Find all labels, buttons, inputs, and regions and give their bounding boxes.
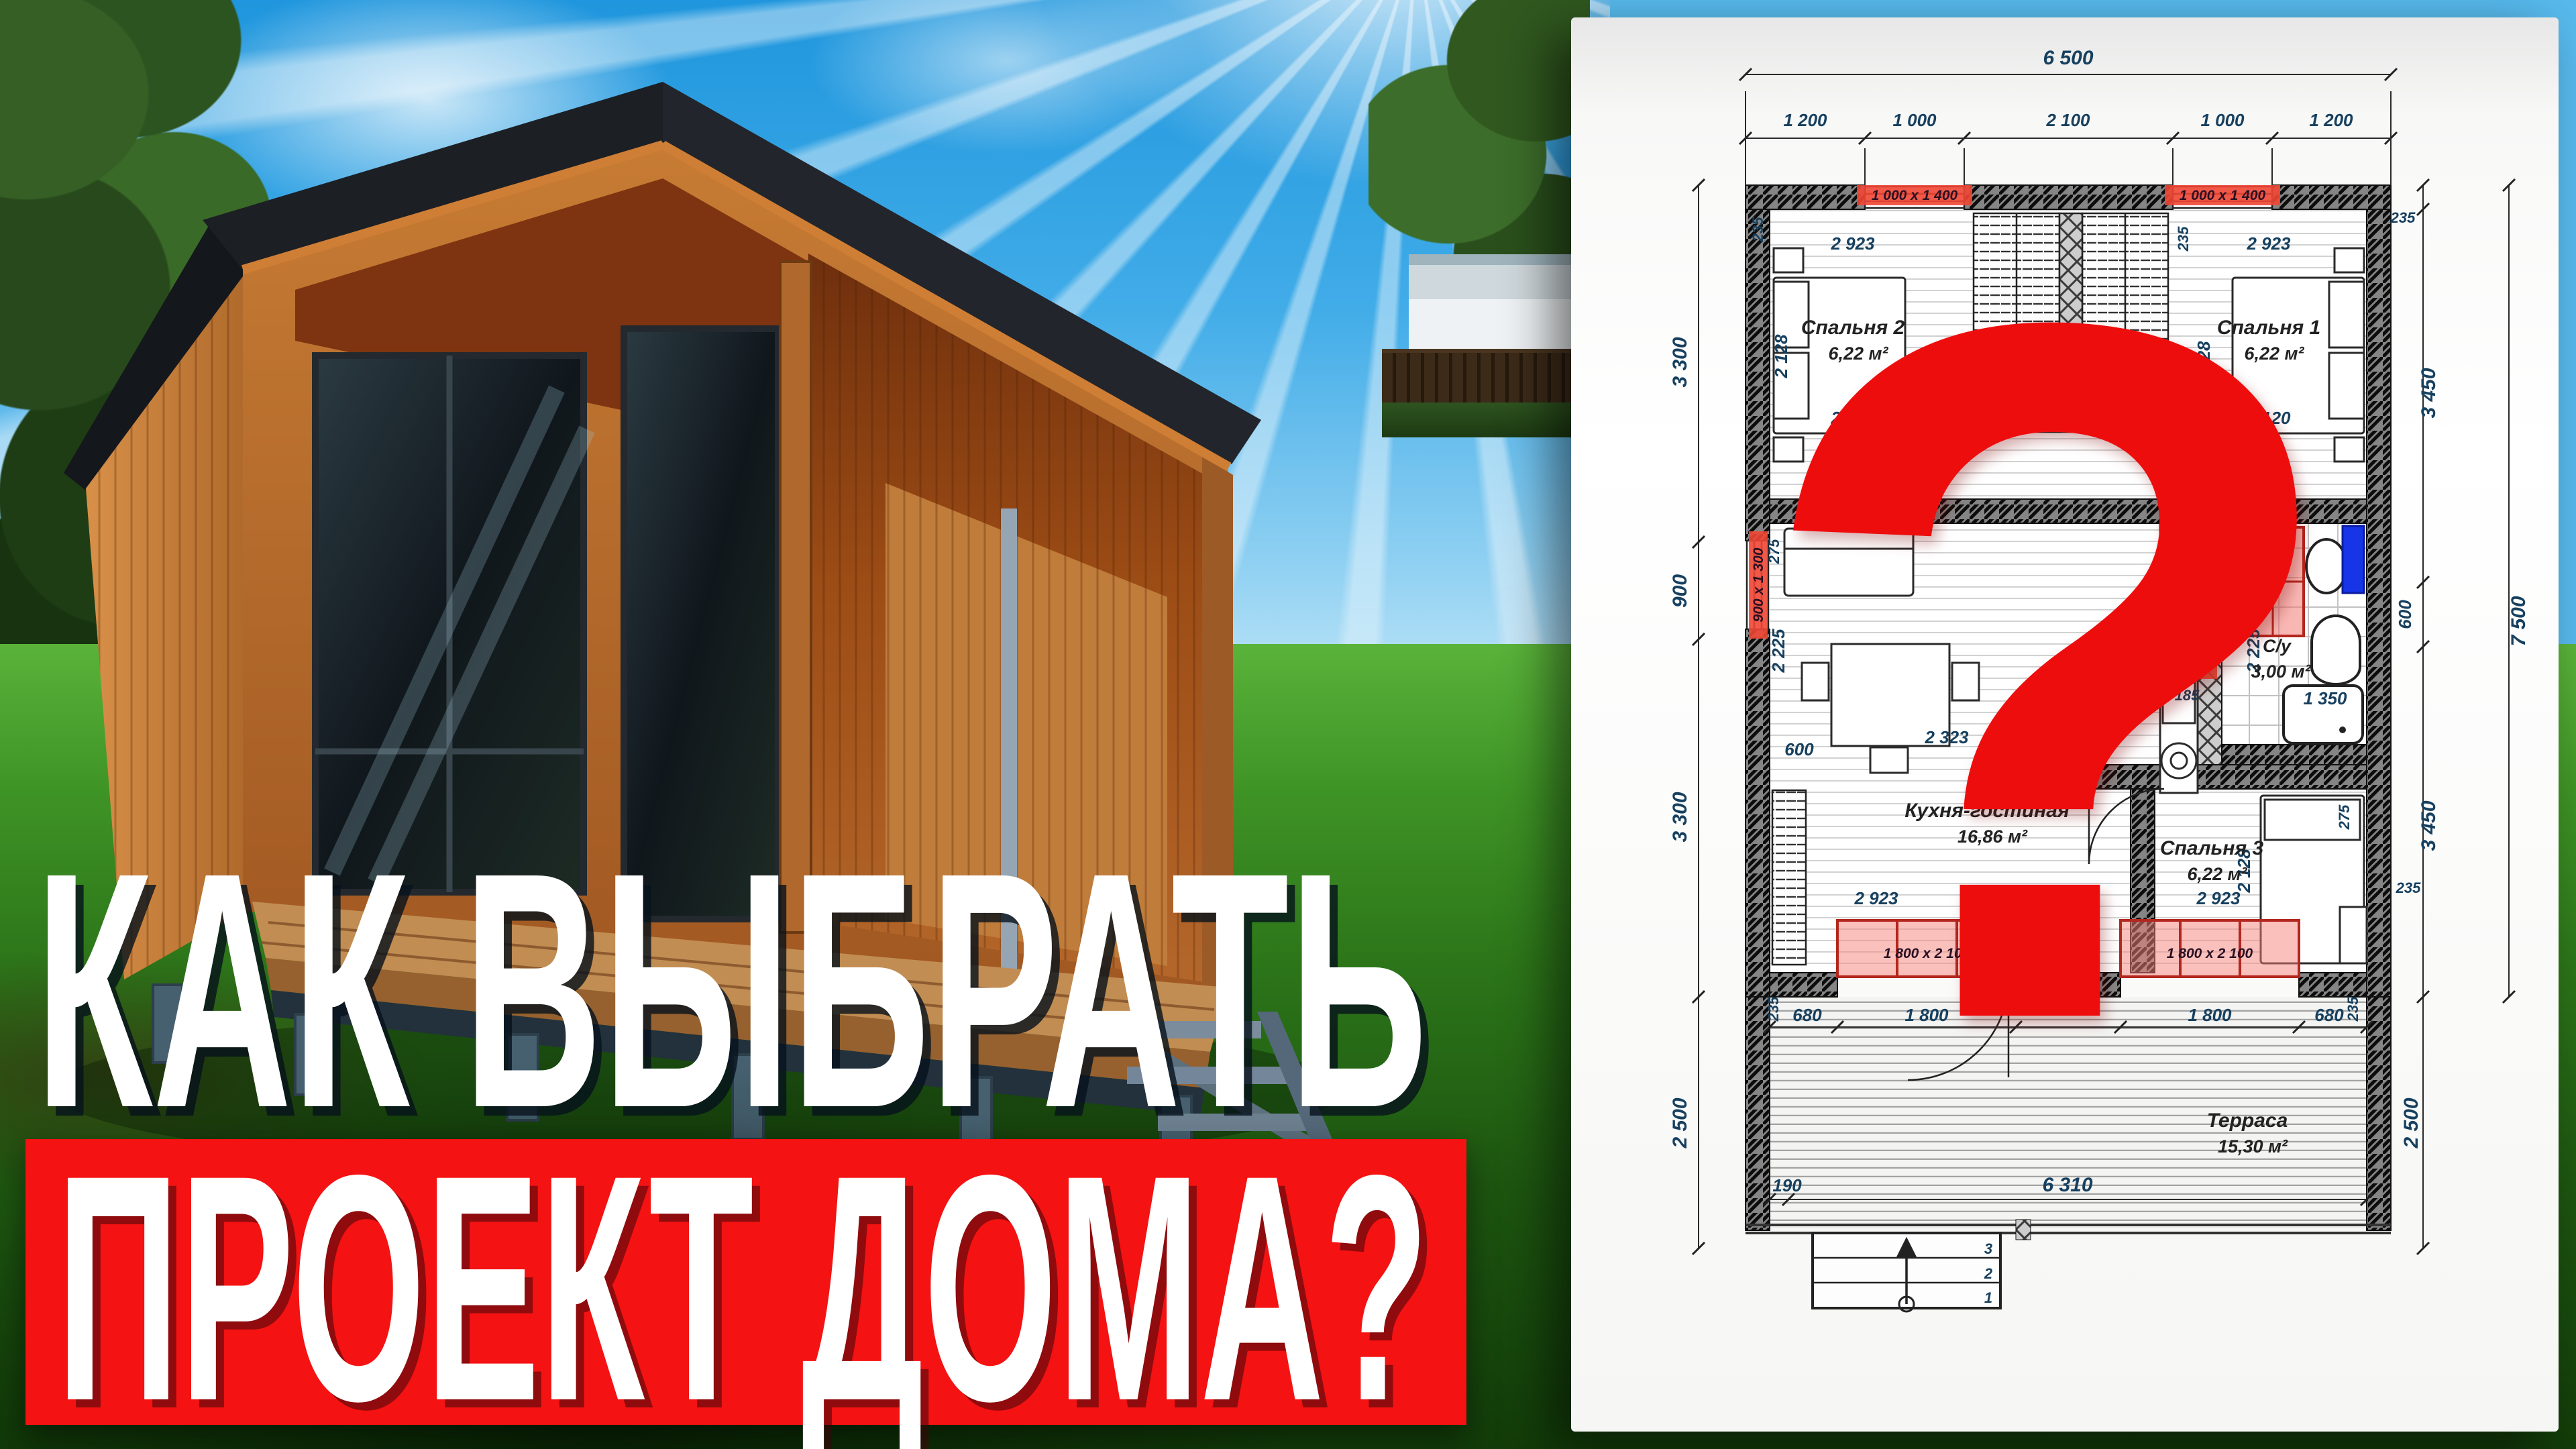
dim-right: 235 (2390, 209, 2416, 226)
floor-plan-sheet: 6 500 1 200 1 000 2 100 1 000 1 200 3 30… (1571, 17, 2559, 1432)
dim-right: 235 (2396, 879, 2421, 896)
headline-banner: ПРОЕКТ ДОМА? ПРОЕКТ ДОМА? (25, 1139, 1466, 1425)
dim-left: 3 300 (1669, 337, 1691, 387)
floor-plan: 6 500 1 200 1 000 2 100 1 000 1 200 3 30… (1571, 17, 2559, 1432)
plan-stairs: 3 2 1 (1813, 1233, 2000, 1311)
dim-right: 600 (2395, 600, 2415, 629)
headline-line1: КАК ВЫБРАТЬ КАК ВЫБРАТЬ (19, 822, 1495, 1137)
stair-step-3: 3 (1984, 1240, 1992, 1257)
dim-left: 3 300 (1669, 792, 1691, 842)
stair-step-2: 2 (1984, 1265, 1993, 1282)
question-mark: ? (1748, 117, 2354, 1226)
dim-top-total: 6 500 (2043, 47, 2093, 69)
hedge (1382, 402, 1603, 437)
dim-right: 3 450 (2418, 800, 2440, 851)
dim-right: 3 450 (2418, 368, 2440, 418)
dim-right-total: 7 500 (2508, 596, 2530, 646)
headline-line2-text: ПРОЕКТ ДОМА? (56, 1108, 1429, 1449)
thumbnail-canvas: КАК ВЫБРАТЬ КАК ВЫБРАТЬ ПРОЕКТ ДОМА? ПРО… (0, 0, 2576, 1449)
dim-left: 2 500 (1669, 1097, 1691, 1148)
stair-step-1: 1 (1984, 1289, 1992, 1306)
dim-left: 900 (1669, 574, 1691, 608)
dim-right: 2 500 (2400, 1097, 2422, 1148)
